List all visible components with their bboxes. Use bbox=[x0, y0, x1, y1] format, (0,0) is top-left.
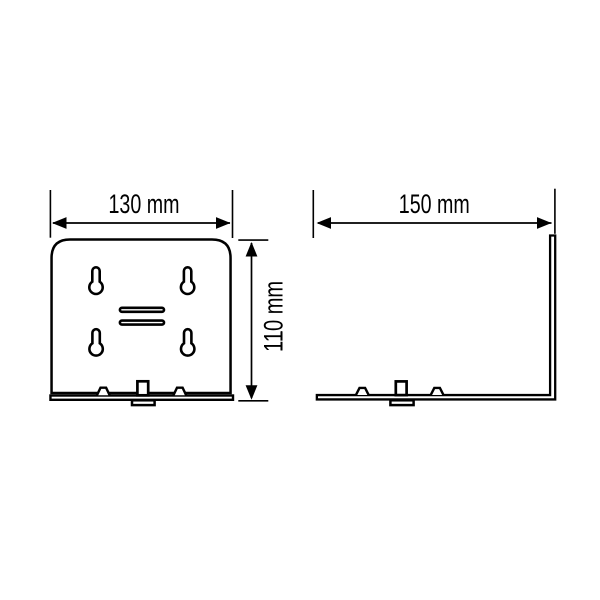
svg-text:130 mm: 130 mm bbox=[109, 189, 180, 219]
svg-text:150 mm: 150 mm bbox=[399, 189, 470, 219]
svg-text:110 mm: 110 mm bbox=[258, 281, 288, 352]
